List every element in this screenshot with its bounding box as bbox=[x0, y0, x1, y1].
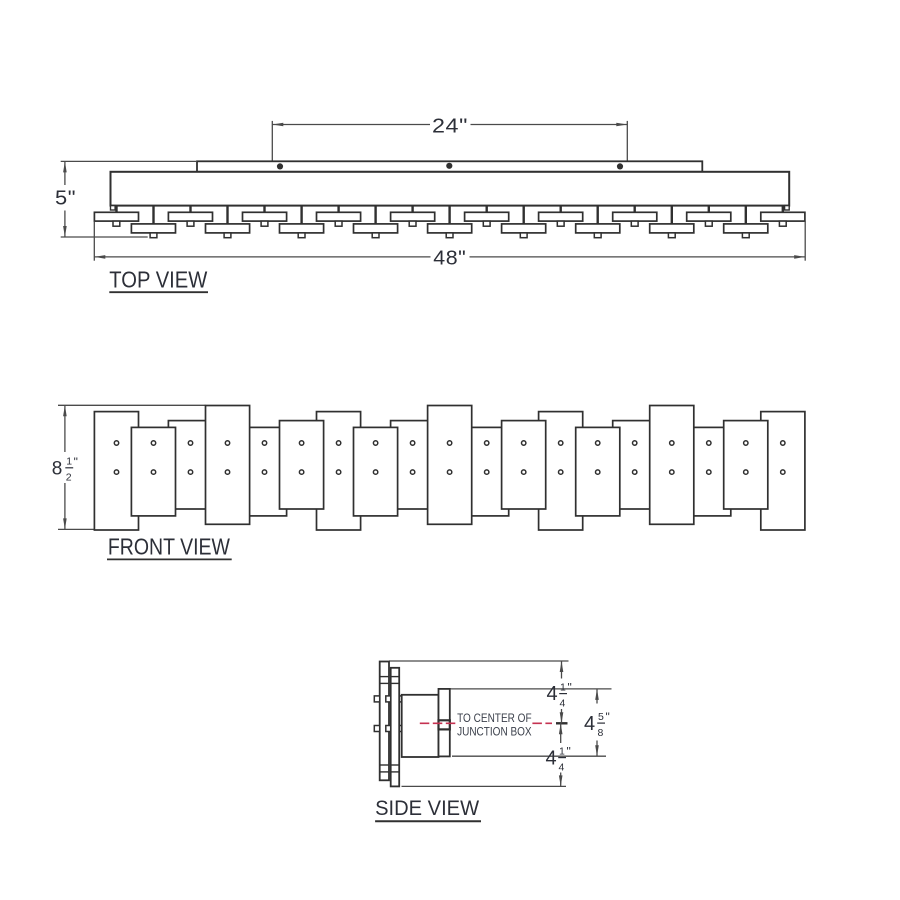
svg-text:1: 1 bbox=[560, 681, 566, 693]
svg-text:8: 8 bbox=[52, 459, 63, 480]
svg-text:48": 48" bbox=[433, 247, 466, 269]
svg-text:": " bbox=[74, 455, 79, 469]
svg-text:4: 4 bbox=[584, 713, 596, 735]
svg-text:": " bbox=[567, 745, 572, 759]
svg-text:8: 8 bbox=[598, 727, 604, 739]
svg-text:FRONT VIEW: FRONT VIEW bbox=[108, 533, 231, 559]
svg-text:5: 5 bbox=[598, 711, 604, 723]
svg-text:4: 4 bbox=[546, 748, 558, 770]
svg-text:4: 4 bbox=[560, 697, 566, 709]
svg-text:": " bbox=[568, 681, 573, 695]
svg-text:TOP VIEW: TOP VIEW bbox=[109, 267, 208, 293]
svg-text:4: 4 bbox=[559, 761, 565, 773]
svg-text:4: 4 bbox=[547, 683, 559, 705]
svg-text:TO CENTER OF: TO CENTER OF bbox=[457, 713, 531, 725]
svg-text:2: 2 bbox=[66, 472, 72, 484]
svg-text:SIDE VIEW: SIDE VIEW bbox=[375, 797, 479, 820]
svg-text:": " bbox=[606, 710, 611, 724]
svg-text:5": 5" bbox=[55, 188, 76, 210]
svg-text:1: 1 bbox=[559, 745, 565, 757]
svg-text:24": 24" bbox=[432, 115, 468, 137]
svg-text:1: 1 bbox=[66, 456, 72, 468]
svg-text:JUNCTION BOX: JUNCTION BOX bbox=[457, 726, 532, 738]
